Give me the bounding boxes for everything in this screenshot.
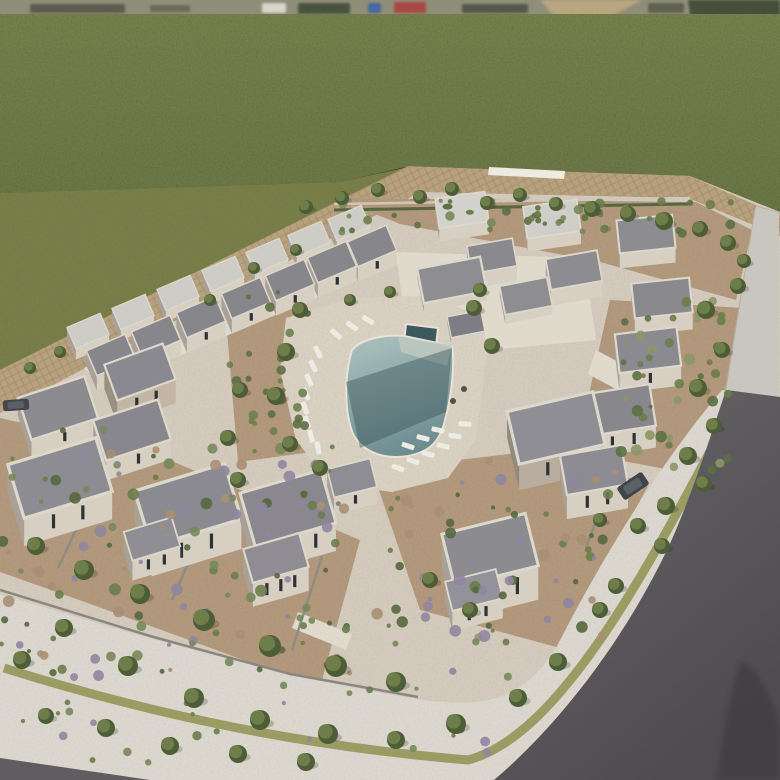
- shrub: [257, 666, 263, 672]
- shrub: [252, 421, 257, 426]
- shrub: [647, 216, 653, 222]
- shrub: [414, 686, 418, 690]
- shrub: [207, 443, 217, 453]
- shrub: [255, 585, 267, 597]
- shrub: [555, 220, 561, 226]
- window-slit: [354, 495, 357, 504]
- shrub: [268, 410, 276, 418]
- shrub: [718, 312, 726, 320]
- villa: [631, 278, 692, 336]
- shrub: [387, 624, 391, 628]
- flat-roof: [435, 192, 489, 229]
- shrub: [577, 534, 588, 545]
- shrub: [83, 486, 90, 493]
- shrub: [285, 614, 290, 619]
- shrub: [499, 591, 507, 599]
- shrub: [491, 629, 495, 633]
- shrub: [136, 621, 146, 631]
- window-slit: [81, 505, 84, 519]
- shrub: [166, 510, 176, 520]
- shrub: [561, 533, 570, 542]
- shrub: [448, 199, 453, 204]
- shrub: [397, 616, 408, 627]
- shrub: [227, 361, 234, 368]
- shrub: [631, 444, 642, 455]
- shrub: [624, 339, 628, 343]
- shrub: [145, 759, 151, 765]
- shrub: [278, 378, 283, 383]
- shrub: [612, 469, 618, 475]
- shrub: [153, 475, 159, 481]
- shrub: [160, 525, 165, 530]
- shrub: [38, 499, 43, 504]
- shrub: [65, 708, 73, 716]
- shrub: [59, 731, 68, 740]
- shrub: [648, 345, 656, 353]
- shrub: [632, 371, 642, 381]
- shrub: [236, 630, 245, 639]
- shrub: [231, 572, 239, 580]
- shrub: [616, 446, 627, 457]
- shrub: [109, 583, 121, 595]
- shrub: [363, 216, 372, 225]
- shrub: [391, 213, 396, 218]
- shrub: [122, 567, 127, 572]
- shrub: [90, 757, 96, 763]
- shrub: [623, 396, 629, 402]
- shrub: [449, 625, 461, 637]
- shrub: [511, 511, 518, 518]
- shrub: [543, 511, 549, 517]
- shrub: [421, 612, 430, 621]
- shrub: [414, 222, 421, 229]
- distant-object: [648, 3, 684, 13]
- shrub: [69, 492, 81, 504]
- shrub: [164, 458, 175, 469]
- shrub: [190, 526, 200, 536]
- distant-object: [262, 3, 286, 13]
- shrub: [505, 576, 514, 585]
- shrub: [50, 636, 56, 642]
- shrub: [670, 463, 678, 471]
- shrub: [670, 315, 677, 322]
- shrub: [576, 621, 588, 633]
- shrub: [495, 474, 506, 485]
- shrub: [410, 745, 417, 752]
- shrub: [592, 476, 600, 484]
- roof-garden: [466, 210, 474, 215]
- shrub: [694, 317, 700, 323]
- shrub: [296, 615, 303, 622]
- shrub: [478, 586, 487, 595]
- shrub: [603, 489, 613, 499]
- shrub: [221, 494, 230, 503]
- shrub: [293, 403, 302, 412]
- shrub: [724, 390, 732, 398]
- shrub: [706, 200, 715, 209]
- shrub: [711, 369, 720, 378]
- shrub: [592, 556, 597, 561]
- shrub: [189, 640, 195, 646]
- shrub: [649, 405, 653, 409]
- shrub: [298, 500, 305, 507]
- shrub: [276, 290, 280, 294]
- shrub: [167, 643, 171, 647]
- shrub: [123, 748, 132, 757]
- shrub: [645, 315, 652, 322]
- shrub: [502, 207, 511, 216]
- shrub: [560, 215, 566, 221]
- window-slit: [52, 514, 55, 528]
- shrub: [371, 608, 383, 620]
- shrub: [56, 711, 60, 715]
- shrub: [707, 359, 713, 365]
- shrub: [641, 373, 646, 378]
- shrub: [342, 625, 350, 633]
- shrub: [50, 475, 61, 486]
- shrub: [16, 641, 24, 649]
- shrub: [723, 455, 731, 463]
- shrub: [389, 506, 394, 511]
- shrub: [570, 474, 581, 485]
- shrub: [346, 690, 352, 696]
- shrub: [707, 396, 718, 407]
- shrub: [225, 592, 230, 597]
- shrub: [621, 359, 627, 365]
- shrub: [449, 668, 456, 675]
- villa: [546, 250, 603, 306]
- shrub: [395, 496, 400, 501]
- shrub: [113, 606, 124, 617]
- window-slit: [279, 579, 282, 591]
- shrub: [665, 441, 672, 448]
- shrub: [505, 507, 511, 513]
- shrub: [674, 396, 682, 404]
- shrub: [454, 574, 466, 586]
- shrub: [600, 225, 608, 233]
- shrub: [467, 557, 474, 564]
- shrub: [472, 586, 479, 593]
- shrub: [327, 621, 332, 626]
- shrub: [483, 748, 492, 757]
- shrub: [213, 630, 220, 637]
- shrub: [585, 546, 592, 553]
- flat-roof: [631, 278, 692, 319]
- shrub: [184, 544, 191, 551]
- shrub: [682, 297, 692, 307]
- shrub: [192, 731, 201, 740]
- shrub: [451, 733, 455, 737]
- shrub: [535, 211, 541, 217]
- window-slit: [205, 332, 208, 340]
- distant-object: [30, 4, 125, 13]
- sun-lounger: [458, 421, 471, 427]
- shrub: [580, 228, 586, 234]
- shrub: [478, 630, 490, 642]
- shrub: [588, 596, 596, 604]
- shrub: [434, 506, 445, 517]
- render-canvas: [0, 0, 780, 780]
- shrub: [636, 331, 646, 341]
- shrub: [57, 665, 66, 674]
- shrub: [246, 351, 252, 357]
- shrub: [698, 373, 704, 379]
- shrub: [408, 503, 414, 509]
- shrub: [300, 490, 308, 498]
- shrub: [60, 427, 66, 433]
- shrub: [246, 294, 251, 299]
- window-slit: [250, 313, 253, 321]
- shrub: [34, 566, 45, 577]
- window-slit: [314, 534, 317, 548]
- shrub: [40, 651, 49, 660]
- shrub: [563, 598, 574, 609]
- shrub: [48, 583, 56, 591]
- shrub: [395, 562, 403, 570]
- shrub: [18, 568, 24, 574]
- shrub: [543, 221, 547, 225]
- shrub: [270, 427, 278, 435]
- shrub: [428, 596, 433, 601]
- shrub: [307, 736, 312, 741]
- shrub: [307, 501, 316, 510]
- shrub: [115, 461, 119, 465]
- shrub: [503, 639, 510, 646]
- shrub: [347, 214, 352, 219]
- window-slit: [293, 575, 296, 587]
- shrub: [535, 218, 541, 224]
- shrub: [210, 460, 221, 471]
- shrub: [331, 539, 340, 548]
- shrub: [134, 611, 143, 620]
- roof-garden: [443, 204, 453, 210]
- distant-object: [462, 4, 528, 13]
- shrub: [152, 446, 159, 453]
- shrub: [284, 576, 291, 583]
- shrub: [472, 638, 479, 645]
- shrub: [139, 560, 143, 564]
- shrub: [391, 604, 401, 614]
- parked-car: [3, 399, 30, 412]
- distant-object: [298, 3, 350, 14]
- shrub: [282, 701, 286, 705]
- shrub: [487, 227, 493, 233]
- shrub: [366, 686, 373, 693]
- shrub: [65, 700, 71, 706]
- shrub: [168, 668, 172, 672]
- shrub: [106, 449, 115, 458]
- window-slit: [163, 555, 166, 565]
- pool-table: [461, 386, 467, 392]
- shrub: [106, 652, 116, 662]
- shrub: [538, 549, 550, 561]
- shrub: [300, 641, 304, 645]
- window-slit: [546, 462, 549, 475]
- shrub: [340, 227, 345, 232]
- shrub: [322, 522, 333, 533]
- shrub: [486, 623, 492, 629]
- shrub: [574, 205, 583, 214]
- shrub: [236, 459, 247, 470]
- shrub: [573, 579, 578, 584]
- shrub: [715, 459, 724, 468]
- shrub: [10, 457, 15, 462]
- shrub: [491, 505, 495, 509]
- shrub: [200, 498, 212, 510]
- shrub: [687, 200, 693, 206]
- shrub: [728, 199, 734, 205]
- shrub: [3, 595, 15, 607]
- shrub: [43, 476, 48, 481]
- shrub: [90, 654, 100, 664]
- window-slit: [633, 433, 636, 444]
- aerial-architectural-render: [0, 0, 780, 780]
- shrub: [265, 531, 273, 539]
- shrub: [70, 673, 78, 681]
- shrub: [480, 737, 490, 747]
- window-slit: [137, 454, 140, 464]
- window-slit: [210, 534, 213, 549]
- shrub: [49, 669, 56, 676]
- shrub: [180, 603, 187, 610]
- shrub: [684, 353, 695, 364]
- shrub: [99, 426, 107, 434]
- shrub: [445, 527, 456, 538]
- shrub: [93, 670, 104, 681]
- shrub: [460, 480, 464, 484]
- shrub: [725, 220, 735, 230]
- shrub: [278, 460, 287, 469]
- shrub: [504, 673, 512, 681]
- shrub: [160, 669, 165, 674]
- shrub: [285, 329, 293, 337]
- shrub: [116, 471, 121, 476]
- shrub: [598, 631, 607, 640]
- window-slit: [484, 606, 487, 616]
- shrub: [708, 466, 716, 474]
- shrub: [171, 584, 183, 596]
- window-slit: [649, 373, 652, 383]
- shrub: [339, 504, 349, 514]
- shrub: [439, 199, 443, 203]
- distant-object: [368, 3, 381, 13]
- shrub: [127, 488, 139, 500]
- shrub: [27, 649, 31, 653]
- shrub: [655, 431, 666, 442]
- shrub: [252, 449, 257, 454]
- shrub: [245, 376, 251, 382]
- shrub: [212, 476, 216, 480]
- shrub: [6, 550, 10, 554]
- shrub: [280, 682, 287, 689]
- shrub: [528, 215, 535, 222]
- shrub: [445, 211, 454, 220]
- distant-object: [394, 2, 426, 13]
- shrub: [21, 719, 25, 723]
- shrub: [487, 218, 496, 227]
- shrub: [55, 590, 64, 599]
- shrub: [90, 719, 97, 726]
- shrub: [302, 604, 310, 612]
- shrub: [265, 302, 275, 312]
- shrub: [79, 542, 89, 552]
- shrub: [318, 511, 325, 518]
- shrub: [284, 471, 296, 483]
- shrub: [308, 617, 315, 624]
- shrub: [24, 622, 29, 627]
- shrub: [231, 509, 242, 520]
- shrub: [388, 548, 393, 553]
- shrub: [214, 728, 220, 734]
- shrub: [637, 361, 643, 367]
- shrub: [323, 568, 328, 573]
- shrub: [300, 622, 307, 629]
- shrub: [657, 197, 665, 205]
- shrub: [598, 535, 608, 545]
- window-slit: [294, 295, 297, 303]
- shrub: [646, 354, 653, 361]
- shrub: [405, 529, 414, 538]
- pool-table: [450, 398, 456, 404]
- shrub: [229, 494, 236, 501]
- shrub: [9, 474, 16, 481]
- shrub: [109, 523, 117, 531]
- shrub: [455, 493, 460, 498]
- shrub: [553, 578, 558, 583]
- shrub: [517, 537, 525, 545]
- shrub: [486, 457, 493, 464]
- shrub: [665, 338, 674, 347]
- shrub: [257, 502, 267, 512]
- shrub: [632, 405, 643, 416]
- shrub: [544, 616, 551, 623]
- shrub: [276, 365, 285, 374]
- shrub: [298, 389, 307, 398]
- window-slit: [63, 432, 66, 441]
- shrub: [209, 561, 218, 570]
- window-slit: [376, 261, 379, 269]
- shrub: [95, 525, 107, 537]
- shrub: [678, 229, 687, 238]
- window-slit: [586, 496, 589, 508]
- distant-object: [150, 5, 190, 12]
- shrub: [78, 450, 89, 461]
- shrub: [392, 641, 398, 647]
- shrub: [107, 543, 112, 548]
- shrub: [151, 454, 156, 459]
- shrub: [190, 712, 194, 716]
- shrub: [621, 318, 629, 326]
- shrub: [349, 228, 355, 234]
- shrub: [317, 502, 325, 510]
- shrub: [246, 592, 256, 602]
- shrub: [180, 506, 191, 517]
- shrub: [1, 616, 8, 623]
- shrub: [330, 444, 335, 449]
- shrub: [295, 415, 303, 423]
- shrub: [667, 434, 674, 441]
- window-slit: [147, 559, 150, 569]
- shrub: [645, 430, 655, 440]
- shrub: [225, 657, 234, 666]
- shrub: [274, 573, 280, 579]
- shrub: [674, 379, 684, 389]
- shrub: [535, 205, 541, 211]
- shrub: [423, 601, 433, 611]
- window-slit: [336, 277, 339, 285]
- shrub: [446, 519, 454, 527]
- shrub: [589, 533, 594, 538]
